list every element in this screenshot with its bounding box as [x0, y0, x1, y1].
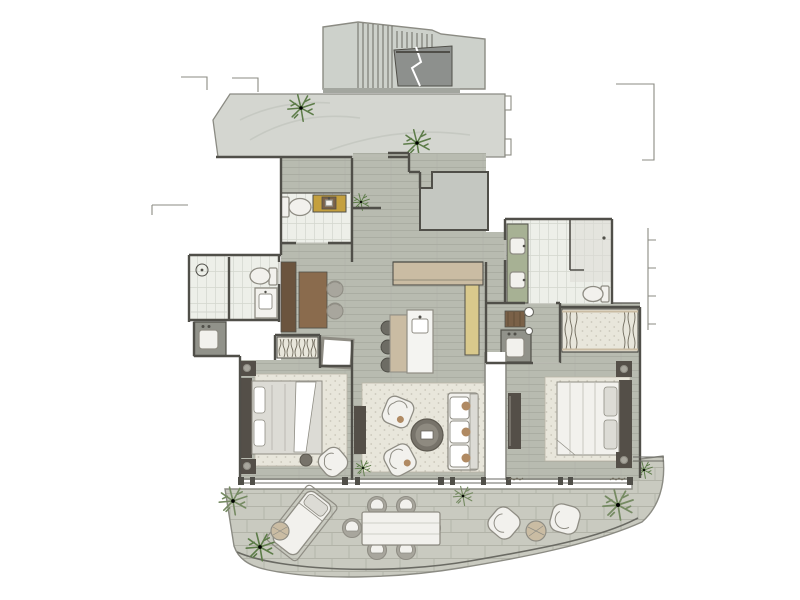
island-wood-table: [390, 315, 407, 372]
outdoor-dining-table: [362, 512, 440, 545]
closet-left: [277, 337, 318, 358]
toilet: [583, 286, 609, 302]
bedroom-left: [239, 337, 353, 480]
sofa: [448, 393, 478, 470]
door-pivot: [526, 328, 533, 335]
pillow: [254, 420, 265, 446]
bed-right: [557, 380, 632, 456]
door-pivot: [525, 308, 534, 317]
headboard: [240, 378, 252, 458]
island-sink: [412, 319, 428, 333]
corridor-floor: [213, 94, 505, 157]
floor-plan-canvas: [0, 0, 800, 600]
living-room: [354, 383, 490, 479]
powder-room: [281, 193, 351, 243]
desk: [299, 272, 327, 328]
access-corridor: [213, 94, 511, 157]
console: [281, 262, 296, 332]
master-vanity: [507, 224, 528, 303]
kitchen-counter: [393, 262, 483, 285]
dining-chair: [343, 519, 362, 538]
bed-left: [240, 378, 322, 458]
toilet: [250, 268, 277, 285]
stairwell: [323, 22, 485, 93]
stool: [300, 454, 312, 466]
tall-yellow-cabinet: [465, 285, 479, 355]
pocket-wall: [485, 352, 506, 480]
master-bathroom: [506, 219, 612, 304]
washbasin-nook: [194, 322, 226, 356]
coffee-table: [411, 419, 443, 451]
shower-floor: [570, 220, 611, 282]
wardrobe: [562, 309, 638, 352]
floor-plan-drawing: [0, 0, 800, 600]
pillow: [604, 387, 617, 416]
pillow: [254, 387, 265, 413]
stair-shadow: [323, 88, 460, 93]
living-tv-console: [354, 406, 366, 454]
bench: [321, 338, 353, 368]
desk-chair: [327, 303, 343, 319]
toilet: [281, 197, 311, 217]
headboard: [619, 380, 632, 456]
pillow: [604, 420, 617, 449]
guest-bathroom: [190, 256, 279, 321]
desk-chair: [327, 281, 343, 297]
bath-vanity: [255, 288, 277, 318]
